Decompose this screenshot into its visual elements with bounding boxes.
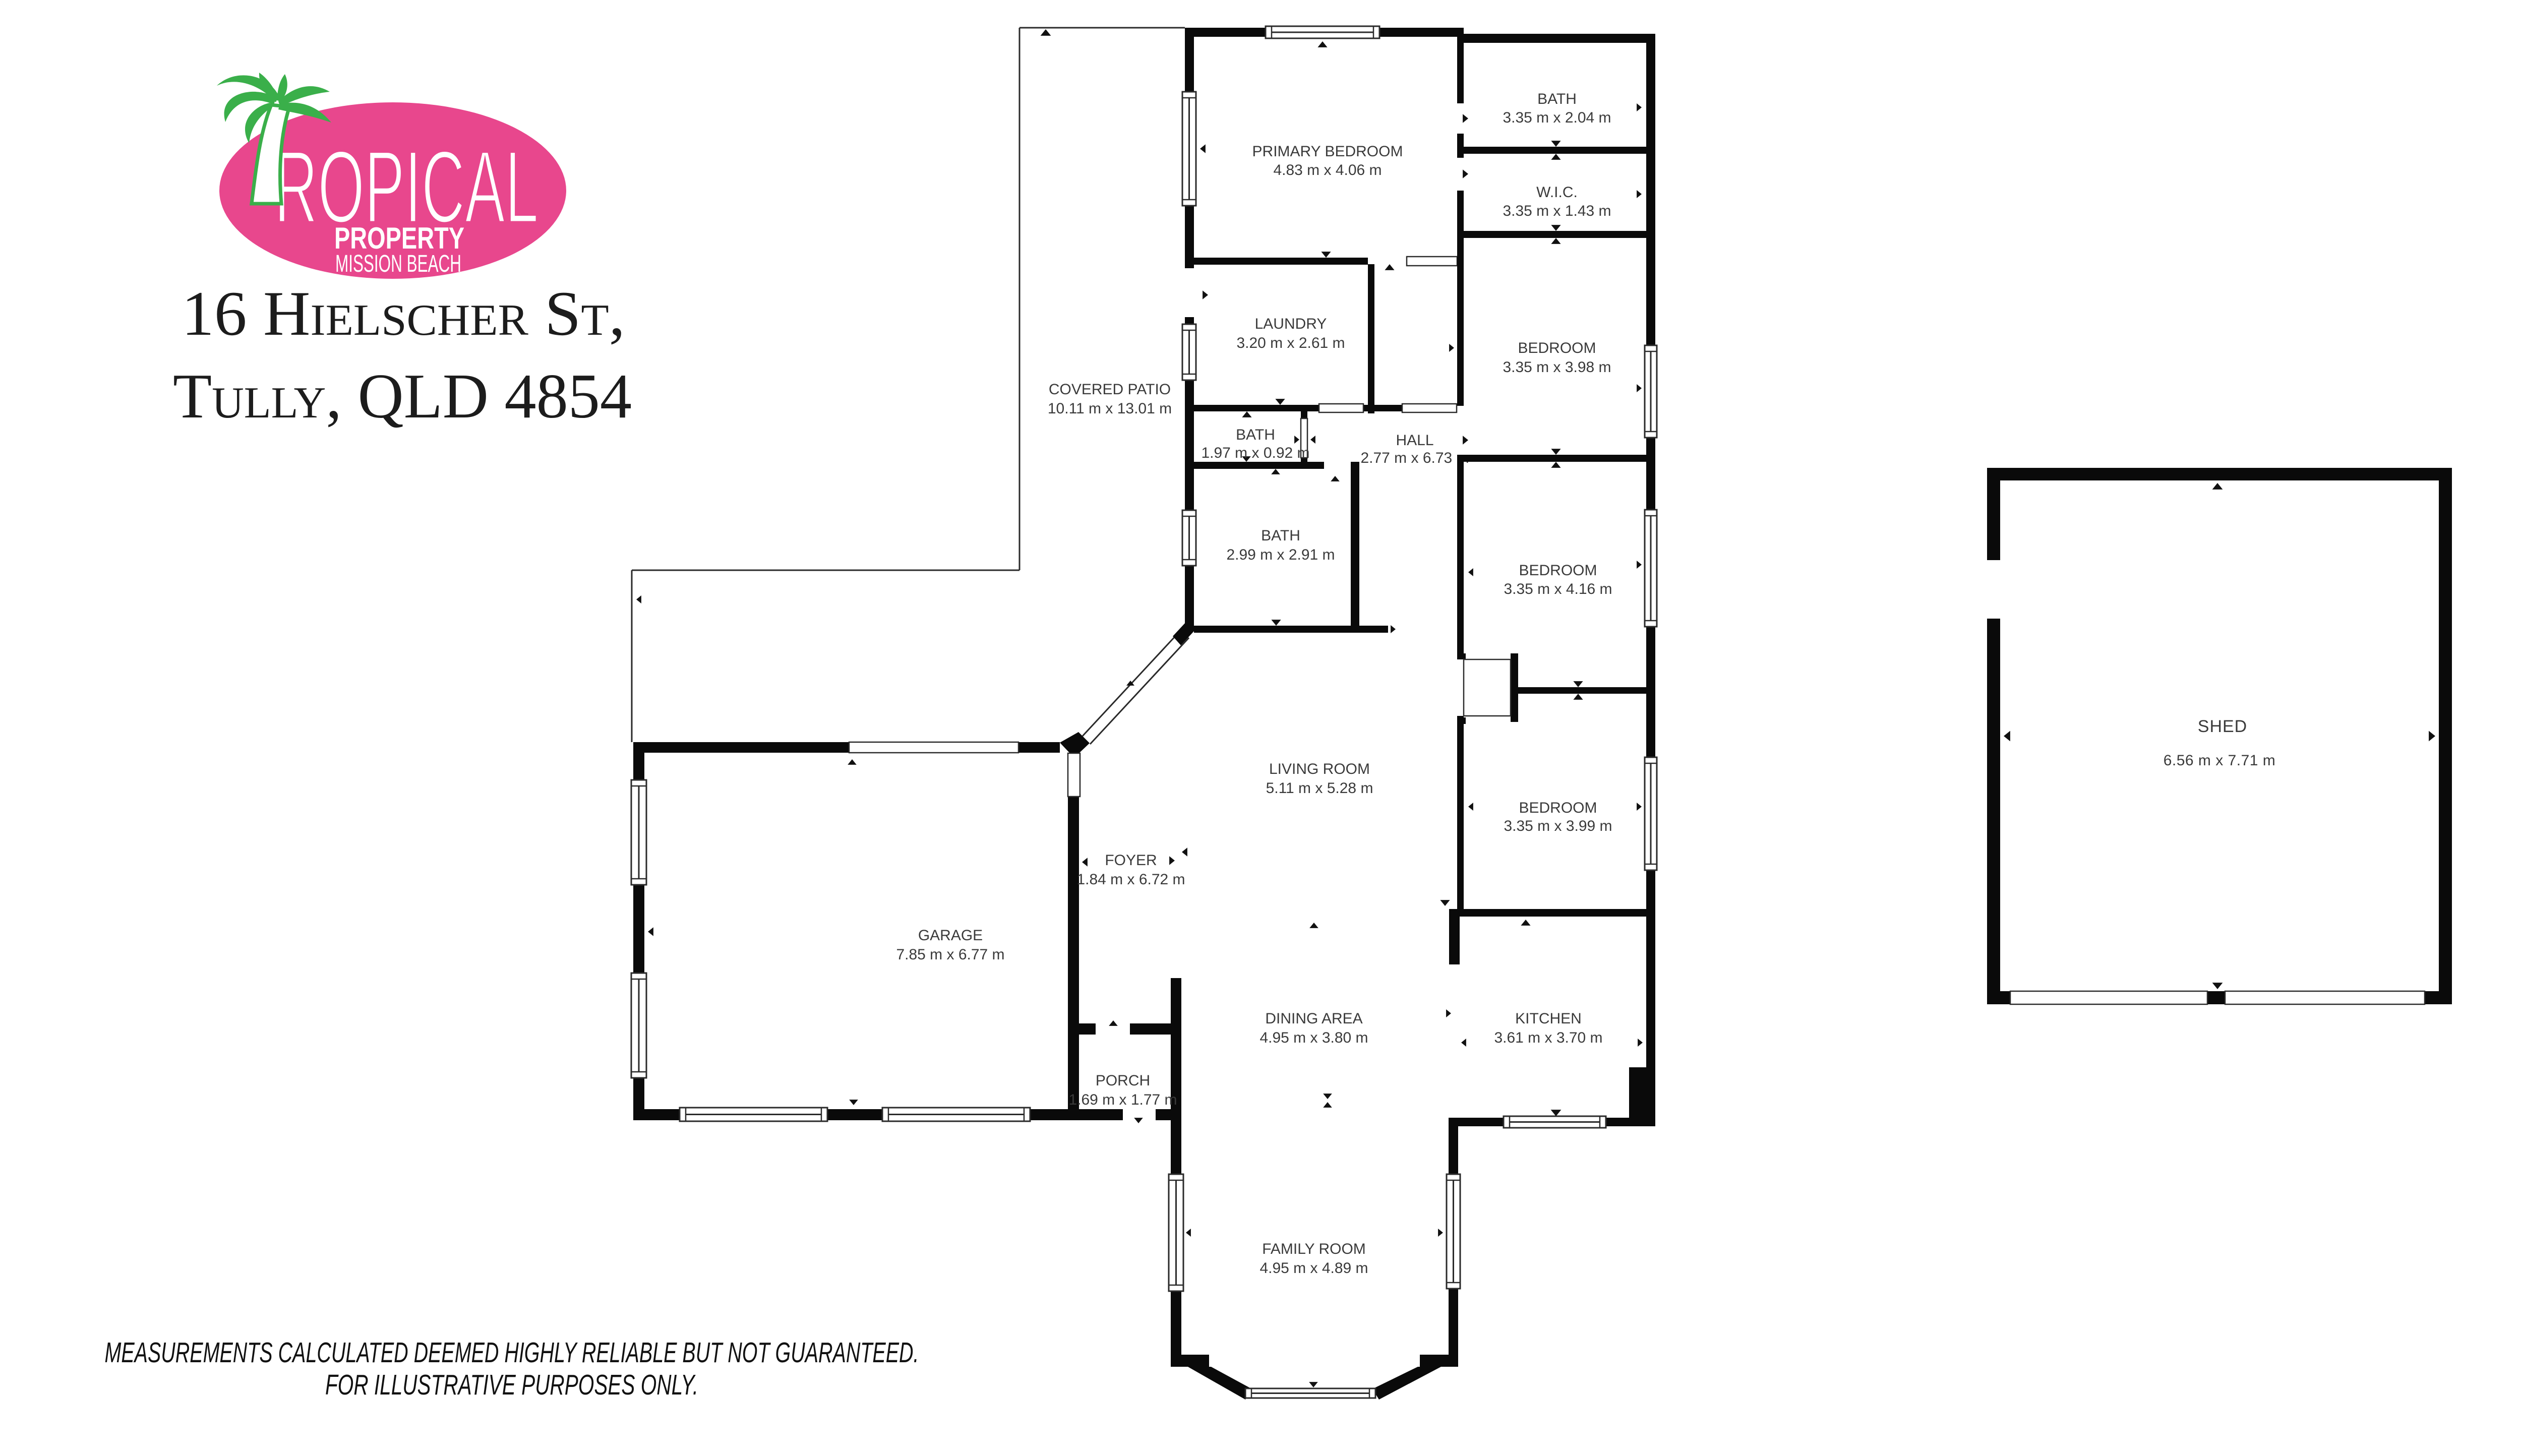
svg-text:1.69 m x 1.77 m: 1.69 m x 1.77 m bbox=[1068, 1091, 1177, 1108]
svg-text:PORCH: PORCH bbox=[1096, 1072, 1150, 1089]
svg-text:PROPERTY: PROPERTY bbox=[334, 221, 464, 255]
svg-text:BATH: BATH bbox=[1261, 527, 1300, 544]
svg-text:COVERED PATIO: COVERED PATIO bbox=[1049, 381, 1171, 398]
svg-text:MEASUREMENTS CALCULATED DEEMED: MEASUREMENTS CALCULATED DEEMED HIGHLY RE… bbox=[105, 1337, 919, 1369]
svg-text:LAUNDRY: LAUNDRY bbox=[1255, 316, 1327, 332]
svg-text:4.95 m x 3.80 m: 4.95 m x 3.80 m bbox=[1259, 1029, 1368, 1046]
svg-text:PRIMARY BEDROOM: PRIMARY BEDROOM bbox=[1252, 143, 1403, 160]
svg-text:3.35 m x 4.16 m: 3.35 m x 4.16 m bbox=[1504, 581, 1612, 597]
svg-text:FOR ILLUSTRATIVE PURPOSES ONLY: FOR ILLUSTRATIVE PURPOSES ONLY. bbox=[325, 1369, 698, 1401]
svg-text:DINING AREA: DINING AREA bbox=[1265, 1010, 1362, 1027]
svg-text:MISSION BEACH: MISSION BEACH bbox=[335, 251, 461, 277]
svg-text:3.35 m x 2.04 m: 3.35 m x 2.04 m bbox=[1503, 109, 1611, 126]
svg-text:3.61 m x 3.70 m: 3.61 m x 3.70 m bbox=[1494, 1029, 1602, 1046]
svg-text:1.84 m x 6.72 m: 1.84 m x 6.72 m bbox=[1076, 871, 1185, 888]
svg-text:LIVING ROOM: LIVING ROOM bbox=[1269, 761, 1370, 777]
svg-text:16 Hielscher St,: 16 Hielscher St, bbox=[182, 279, 625, 349]
svg-text:BEDROOM: BEDROOM bbox=[1519, 800, 1597, 816]
svg-text:FAMILY ROOM: FAMILY ROOM bbox=[1262, 1241, 1366, 1257]
svg-text:6.56 m x 7.71 m: 6.56 m x 7.71 m bbox=[2164, 752, 2276, 769]
svg-text:3.20 m x 2.61 m: 3.20 m x 2.61 m bbox=[1236, 335, 1345, 351]
svg-text:1.97 m x 0.92 m: 1.97 m x 0.92 m bbox=[1201, 445, 1309, 461]
svg-text:2.99 m x 2.91 m: 2.99 m x 2.91 m bbox=[1226, 547, 1335, 563]
svg-text:2.77 m x 6.73 m: 2.77 m x 6.73 m bbox=[1360, 450, 1469, 466]
svg-text:7.85 m x 6.77 m: 7.85 m x 6.77 m bbox=[896, 946, 1004, 963]
svg-text:Tully, QLD 4854: Tully, QLD 4854 bbox=[173, 361, 632, 432]
svg-text:3.35 m x 3.98 m: 3.35 m x 3.98 m bbox=[1503, 359, 1611, 376]
svg-text:HALL: HALL bbox=[1396, 432, 1433, 449]
svg-text:SHED: SHED bbox=[2198, 717, 2247, 736]
svg-text:3.35 m x 1.43 m: 3.35 m x 1.43 m bbox=[1503, 203, 1611, 219]
svg-text:KITCHEN: KITCHEN bbox=[1515, 1010, 1582, 1027]
svg-text:5.11 m x 5.28 m: 5.11 m x 5.28 m bbox=[1266, 780, 1373, 797]
svg-text:FOYER: FOYER bbox=[1105, 852, 1157, 869]
svg-text:4.95 m x 4.89 m: 4.95 m x 4.89 m bbox=[1259, 1260, 1368, 1277]
svg-text:BATH: BATH bbox=[1537, 91, 1577, 107]
svg-text:GARAGE: GARAGE bbox=[918, 927, 983, 944]
svg-text:BATH: BATH bbox=[1236, 427, 1275, 443]
svg-text:BEDROOM: BEDROOM bbox=[1518, 340, 1596, 356]
svg-text:BEDROOM: BEDROOM bbox=[1519, 562, 1597, 579]
svg-text:4.83 m x 4.06 m: 4.83 m x 4.06 m bbox=[1273, 162, 1382, 178]
svg-text:10.11 m x 13.01 m: 10.11 m x 13.01 m bbox=[1048, 400, 1172, 417]
svg-text:3.35 m x 3.99 m: 3.35 m x 3.99 m bbox=[1504, 818, 1612, 834]
svg-text:W.I.C.: W.I.C. bbox=[1536, 184, 1578, 201]
